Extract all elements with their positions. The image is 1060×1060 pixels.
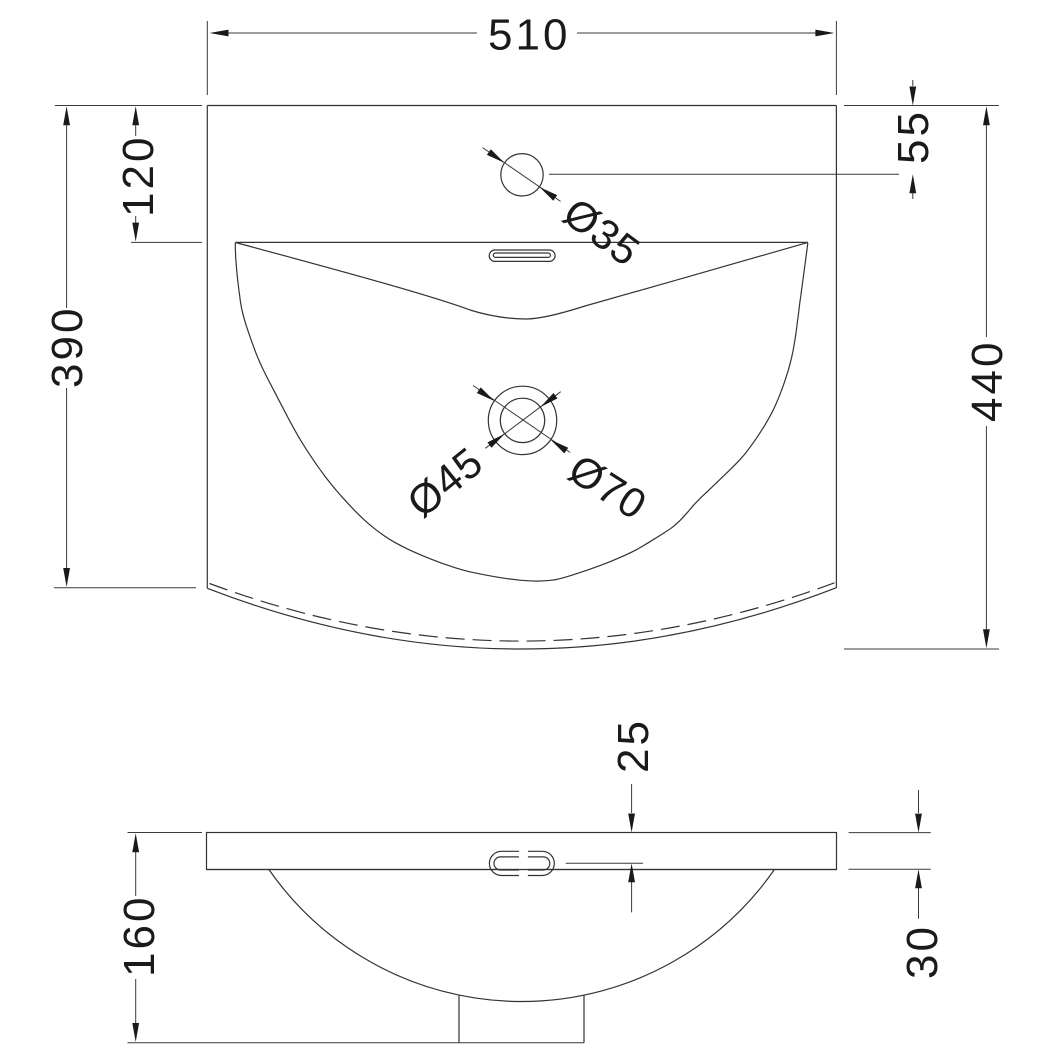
svg-text:120: 120: [114, 135, 163, 217]
svg-text:55: 55: [889, 109, 938, 164]
svg-text:440: 440: [963, 340, 1012, 422]
svg-text:30: 30: [898, 924, 947, 979]
svg-text:510: 510: [488, 11, 570, 60]
svg-text:390: 390: [43, 306, 92, 388]
svg-text:25: 25: [609, 718, 658, 773]
svg-text:160: 160: [115, 895, 164, 977]
